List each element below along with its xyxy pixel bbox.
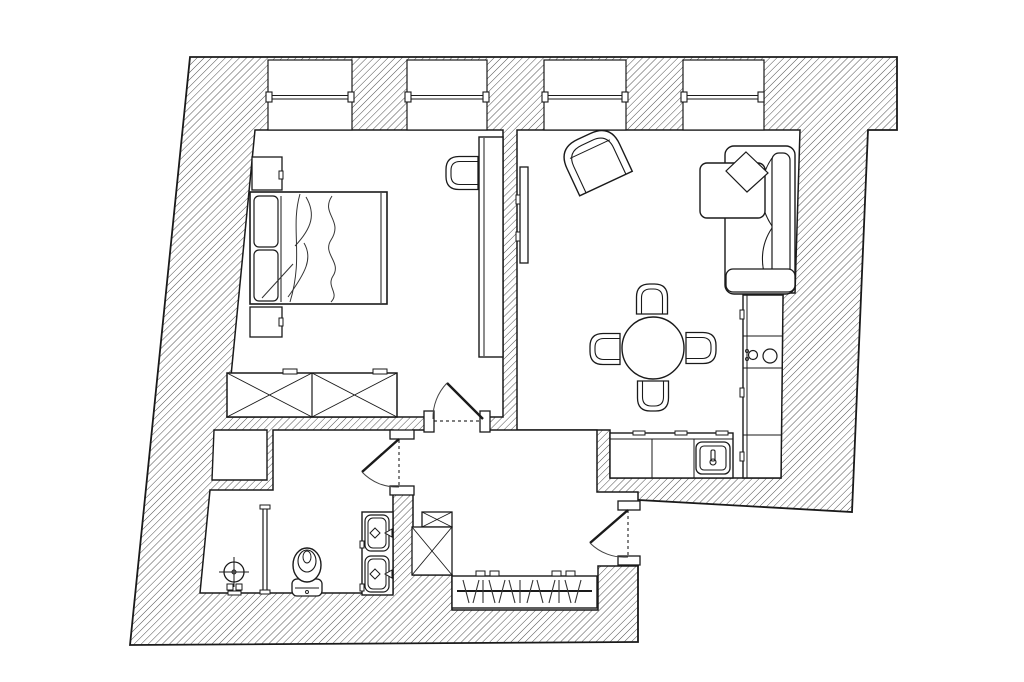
dining-table: [622, 317, 684, 379]
duct-niche-part: [212, 430, 267, 480]
bedroom-desk-part: [479, 137, 503, 357]
vanity-double-sink-part: [360, 584, 364, 591]
kitchen-counter-right-part: [740, 388, 744, 397]
kitchen-counter-right-part: [740, 452, 744, 461]
dining-chair-south: [638, 381, 669, 411]
window-2-part: [405, 92, 411, 102]
bedroom-door-part: [424, 411, 434, 432]
kitchen-counter-bottom-part: [716, 431, 728, 435]
vanity-double-sink-part: [360, 541, 364, 548]
toilet: [292, 548, 322, 596]
shower-part: [236, 584, 242, 590]
bedroom-wardrobe-part: [283, 369, 297, 374]
nightstand-bottom: [250, 307, 283, 337]
bedroom-desk: [479, 137, 503, 357]
tv-part: [516, 232, 520, 241]
window-4-part: [681, 92, 687, 102]
tv-part: [520, 167, 528, 263]
dining-chair-west: [590, 334, 620, 365]
shower-glass-part: [263, 507, 267, 593]
dining-chair-east: [686, 333, 716, 364]
kitchen-counter-right-part: [740, 310, 744, 319]
apartment-floor-plan: [0, 0, 1024, 682]
kitchen-counter-right-part: [743, 295, 783, 478]
shower-glass-part: [260, 590, 270, 594]
desk-chair: [446, 157, 478, 190]
floor-plan-page: [0, 0, 1024, 682]
window-1: [266, 60, 354, 130]
vanity-double-sink: [360, 512, 393, 595]
window-4-part: [758, 92, 764, 102]
nightstand-bottom-part: [250, 307, 282, 337]
window-4: [681, 60, 764, 130]
bathroom-door-part: [391, 439, 414, 487]
coat-rack-part: [476, 571, 485, 576]
window-3-part: [542, 92, 548, 102]
tv-part: [516, 195, 520, 204]
shower-part: [227, 584, 233, 590]
dining-chair-north: [637, 284, 668, 314]
duct-niche: [212, 430, 267, 480]
kitchen-counter-right: [740, 295, 783, 478]
window-3: [542, 60, 628, 130]
shower-glass-part: [260, 505, 270, 509]
corner-sofa-part: [726, 269, 795, 292]
bedroom-door-part: [480, 411, 490, 432]
shower-part: [228, 591, 241, 595]
bedroom-wardrobe-part: [373, 369, 387, 374]
nightstand-bottom-part: [279, 318, 283, 326]
nightstand-top-part: [279, 171, 283, 179]
bedroom-door-part: [432, 413, 483, 432]
nightstand-top-part: [252, 157, 282, 190]
coat-rack: [452, 571, 597, 608]
bedroom-wardrobe: [227, 369, 397, 417]
bathroom-door-part: [390, 430, 414, 439]
nightstand-top: [252, 157, 283, 190]
toilet-part: [293, 548, 321, 582]
kitchen-counter-bottom-part: [675, 431, 687, 435]
double-bed: [250, 192, 387, 304]
window-1-part: [266, 92, 272, 102]
window-2-part: [483, 92, 489, 102]
double-bed-part: [254, 196, 278, 247]
kitchen-counter-bottom: [610, 431, 733, 478]
window-3-part: [622, 92, 628, 102]
coat-rack-part: [566, 571, 575, 576]
entry-door-part: [618, 501, 640, 510]
corner-sofa-part: [772, 153, 790, 287]
kitchen-counter-bottom-part: [633, 431, 645, 435]
window-1-part: [348, 92, 354, 102]
coat-rack-part: [552, 571, 561, 576]
dining-table-part: [622, 317, 684, 379]
coat-rack-part: [490, 571, 499, 576]
window-2: [405, 60, 489, 130]
